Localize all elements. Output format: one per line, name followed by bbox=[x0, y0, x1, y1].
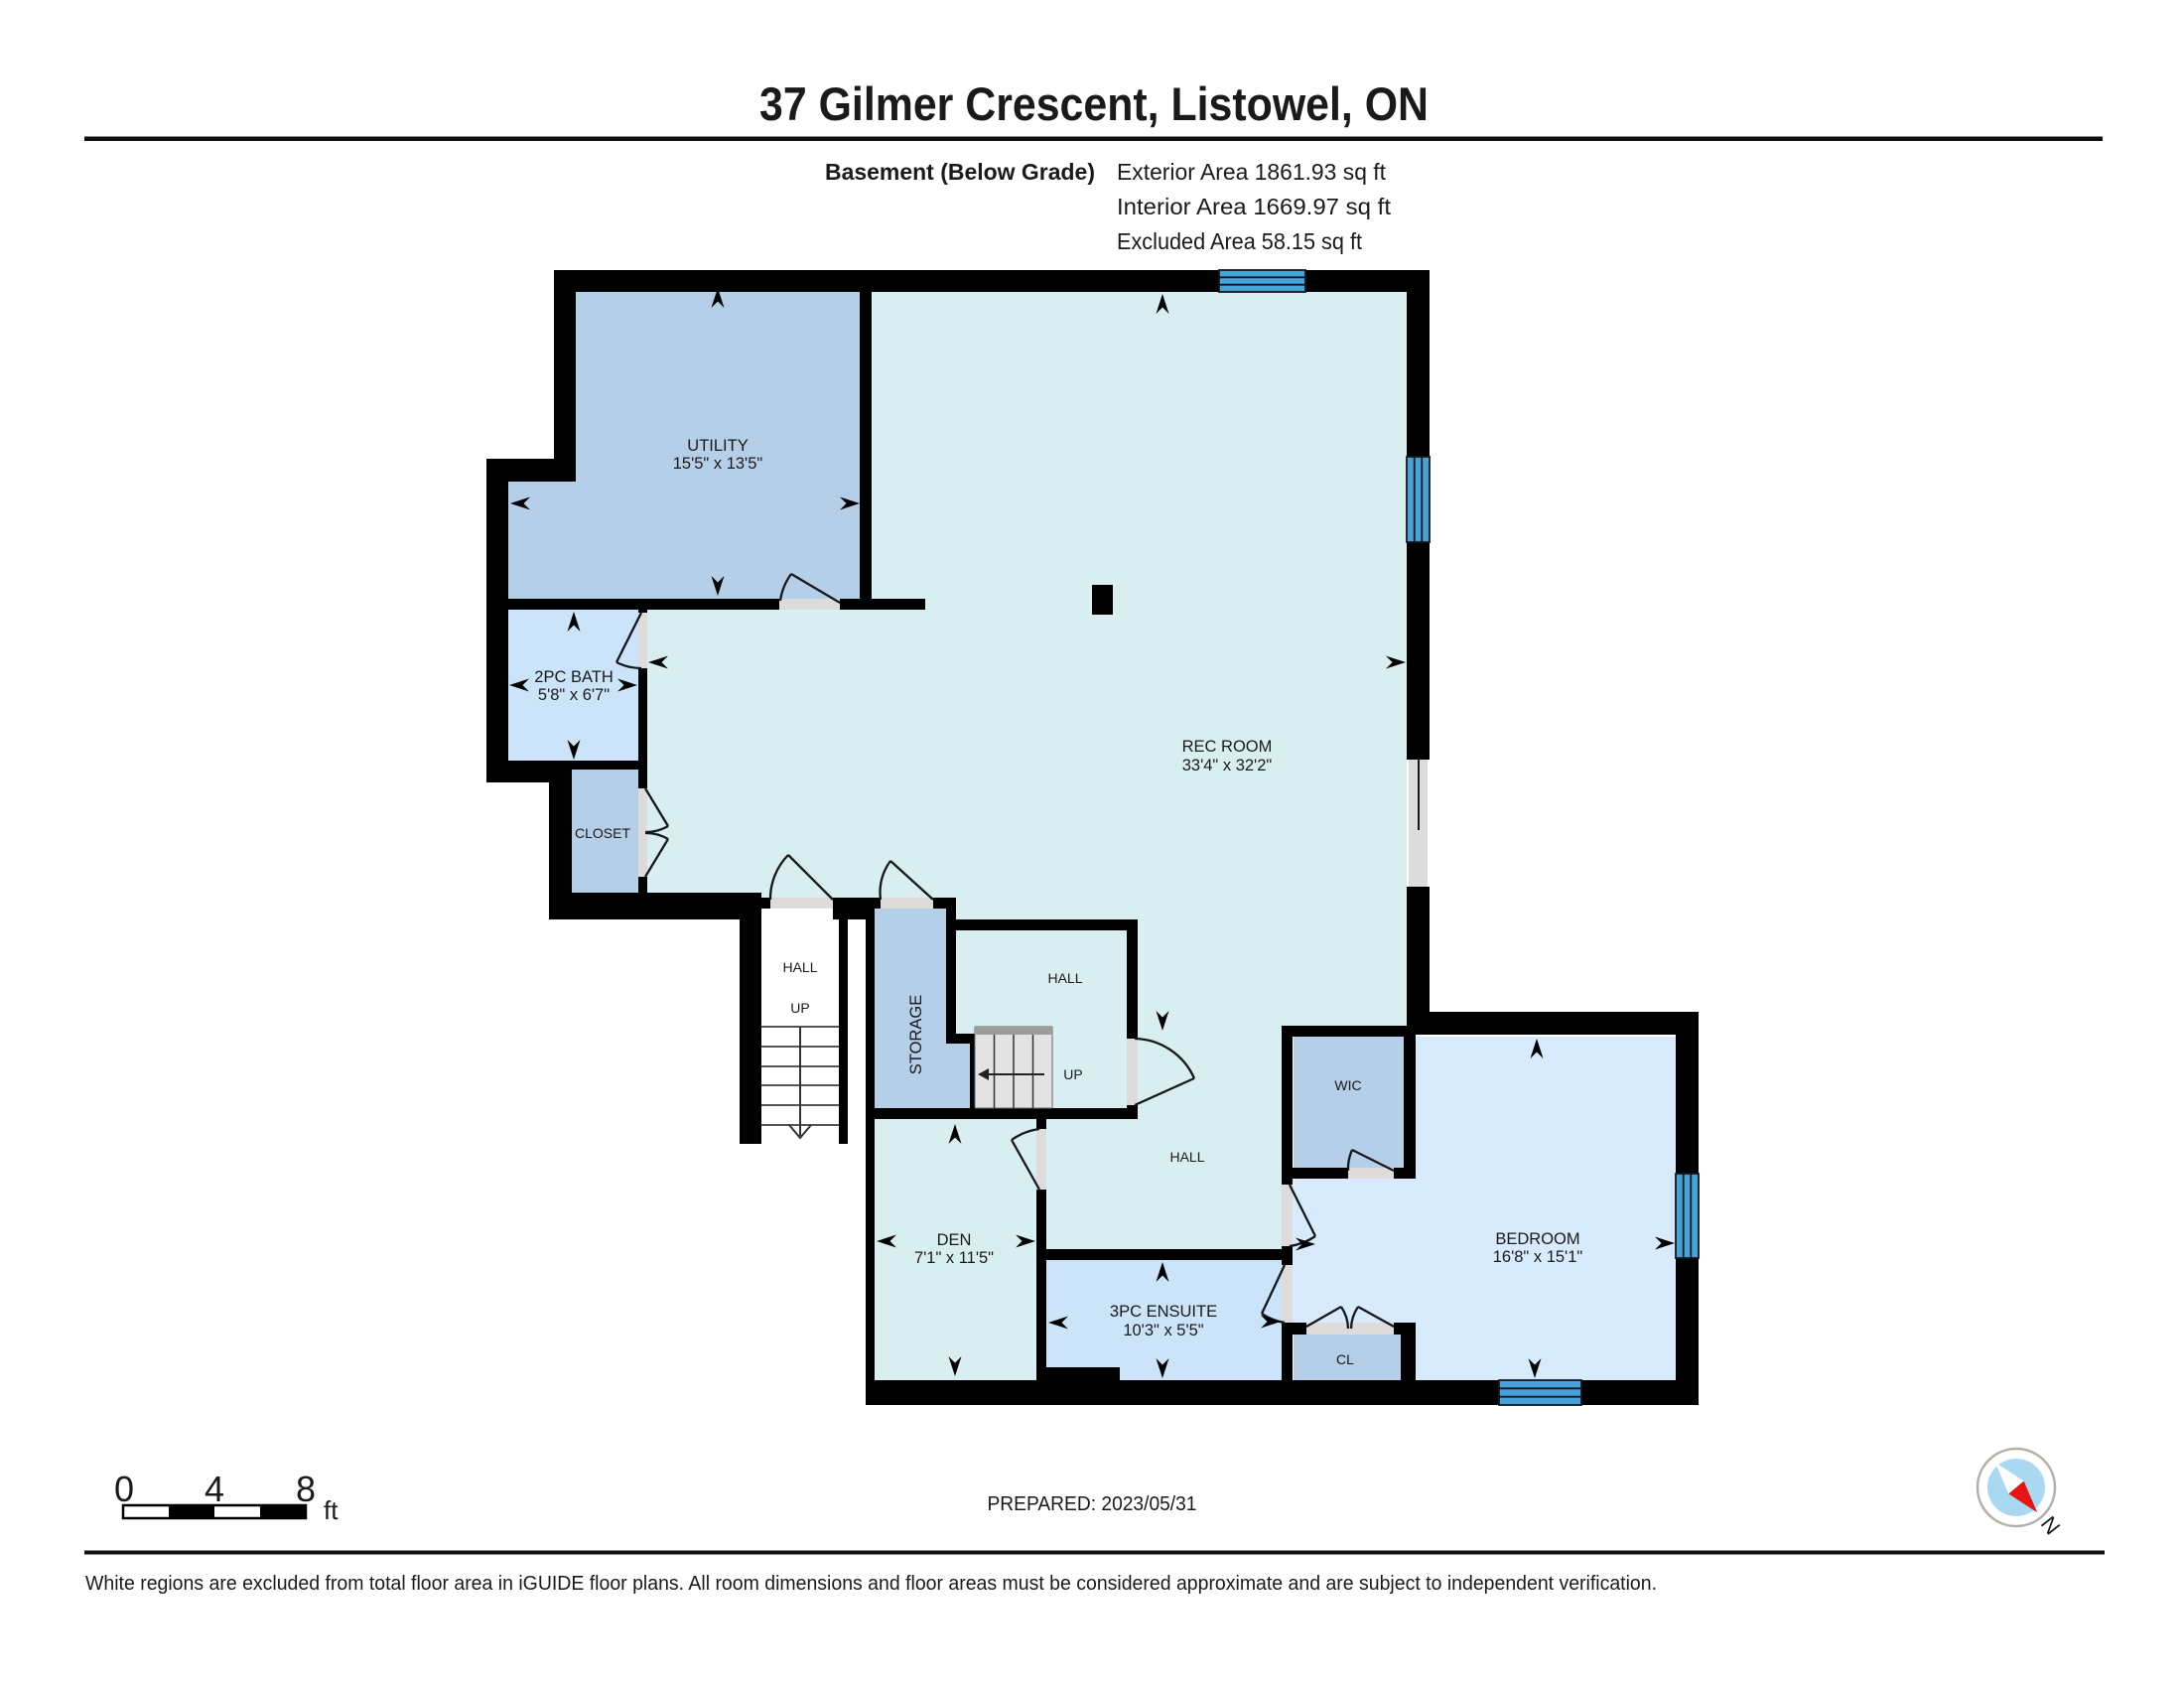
svg-text:3PC ENSUITE: 3PC ENSUITE bbox=[1110, 1303, 1217, 1321]
svg-text:STORAGE: STORAGE bbox=[907, 995, 925, 1074]
svg-text:33'4" x 32'2": 33'4" x 32'2" bbox=[1182, 757, 1273, 774]
svg-text:HALL: HALL bbox=[1169, 1149, 1204, 1165]
svg-text:UP: UP bbox=[790, 1000, 809, 1016]
svg-text:HALL: HALL bbox=[782, 959, 817, 975]
svg-text:37 Gilmer Crescent, Listowel,: 37 Gilmer Crescent, Listowel, ON bbox=[759, 77, 1429, 130]
svg-text:WIC: WIC bbox=[1334, 1077, 1361, 1093]
svg-text:0: 0 bbox=[114, 1469, 134, 1509]
svg-text:PREPARED: 2023/05/31: PREPARED: 2023/05/31 bbox=[988, 1493, 1197, 1515]
svg-text:DEN: DEN bbox=[937, 1231, 972, 1249]
svg-text:UP: UP bbox=[1063, 1066, 1082, 1082]
svg-text:UTILITY: UTILITY bbox=[687, 437, 748, 455]
svg-text:10'3" x 5'5": 10'3" x 5'5" bbox=[1123, 1322, 1203, 1339]
svg-text:7'1" x 11'5": 7'1" x 11'5" bbox=[914, 1249, 994, 1267]
svg-text:Interior Area 1669.97 sq ft: Interior Area 1669.97 sq ft bbox=[1117, 194, 1392, 219]
svg-text:HALL: HALL bbox=[1047, 970, 1082, 986]
svg-text:CLOSET: CLOSET bbox=[575, 825, 630, 841]
svg-text:4: 4 bbox=[205, 1469, 224, 1509]
svg-text:ft: ft bbox=[324, 1495, 339, 1525]
svg-text:16'8" x 15'1": 16'8" x 15'1" bbox=[1493, 1248, 1583, 1266]
svg-text:Basement (Below Grade): Basement (Below Grade) bbox=[825, 159, 1095, 185]
svg-text:2PC BATH: 2PC BATH bbox=[534, 668, 613, 686]
svg-text:BEDROOM: BEDROOM bbox=[1495, 1230, 1579, 1248]
svg-text:REC ROOM: REC ROOM bbox=[1182, 738, 1273, 756]
svg-text:15'5" x 13'5": 15'5" x 13'5" bbox=[673, 455, 763, 473]
svg-text:White regions are excluded fro: White regions are excluded from total fl… bbox=[85, 1573, 1657, 1595]
svg-text:CL: CL bbox=[1336, 1351, 1354, 1367]
svg-text:8: 8 bbox=[296, 1469, 316, 1509]
svg-text:Exterior Area 1861.93 sq ft: Exterior Area 1861.93 sq ft bbox=[1117, 159, 1387, 185]
svg-text:5'8" x 6'7": 5'8" x 6'7" bbox=[538, 686, 610, 704]
svg-text:Excluded Area 58.15 sq ft: Excluded Area 58.15 sq ft bbox=[1117, 228, 1363, 254]
